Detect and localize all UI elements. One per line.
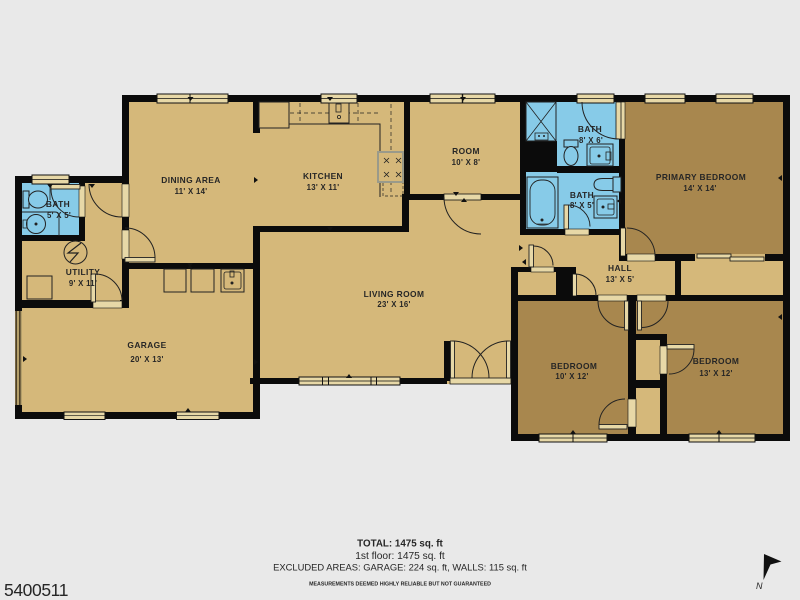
svg-text:BEDROOM: BEDROOM [693, 356, 740, 366]
svg-text:BEDROOM: BEDROOM [551, 361, 598, 371]
svg-text:8' X 5': 8' X 5' [570, 201, 594, 210]
svg-text:10' X 12': 10' X 12' [555, 372, 588, 381]
svg-text:GARAGE: GARAGE [127, 340, 166, 350]
svg-text:UTILITY: UTILITY [66, 267, 100, 277]
svg-text:LIVING ROOM: LIVING ROOM [364, 289, 425, 299]
svg-text:5400511: 5400511 [4, 580, 68, 600]
svg-text:9' X 11': 9' X 11' [69, 279, 97, 288]
svg-text:14' X 14': 14' X 14' [683, 184, 716, 193]
svg-text:KITCHEN: KITCHEN [303, 171, 343, 181]
svg-text:BATH: BATH [46, 199, 70, 209]
svg-text:BATH: BATH [578, 124, 602, 134]
svg-text:10' X 8': 10' X 8' [452, 158, 481, 167]
svg-text:DINING AREA: DINING AREA [161, 175, 220, 185]
svg-text:20' X 13': 20' X 13' [130, 355, 163, 364]
svg-text:BATH: BATH [570, 190, 594, 200]
svg-text:EXCLUDED AREAS: GARAGE: 224 sq: EXCLUDED AREAS: GARAGE: 224 sq. ft, WALL… [273, 562, 527, 573]
svg-text:23' X 16': 23' X 16' [377, 300, 410, 309]
svg-text:MEASUREMENTS DEEMED HIGHLY REL: MEASUREMENTS DEEMED HIGHLY RELIABLE BUT … [309, 582, 491, 588]
svg-text:1st floor: 1475 sq. ft: 1st floor: 1475 sq. ft [355, 551, 445, 562]
svg-text:13' X 12': 13' X 12' [699, 369, 732, 378]
svg-text:HALL: HALL [608, 263, 632, 273]
svg-text:11' X 14': 11' X 14' [175, 187, 208, 196]
svg-text:PRIMARY BEDROOM: PRIMARY BEDROOM [656, 172, 746, 182]
svg-text:5' X 5': 5' X 5' [47, 211, 71, 220]
svg-text:TOTAL: 1475 sq. ft: TOTAL: 1475 sq. ft [357, 539, 443, 550]
svg-text:13' X 11': 13' X 11' [307, 183, 340, 192]
svg-text:N: N [756, 581, 763, 591]
svg-text:13' X 5': 13' X 5' [606, 275, 635, 284]
svg-text:8' X 6': 8' X 6' [579, 136, 603, 145]
svg-text:ROOM: ROOM [452, 146, 480, 156]
